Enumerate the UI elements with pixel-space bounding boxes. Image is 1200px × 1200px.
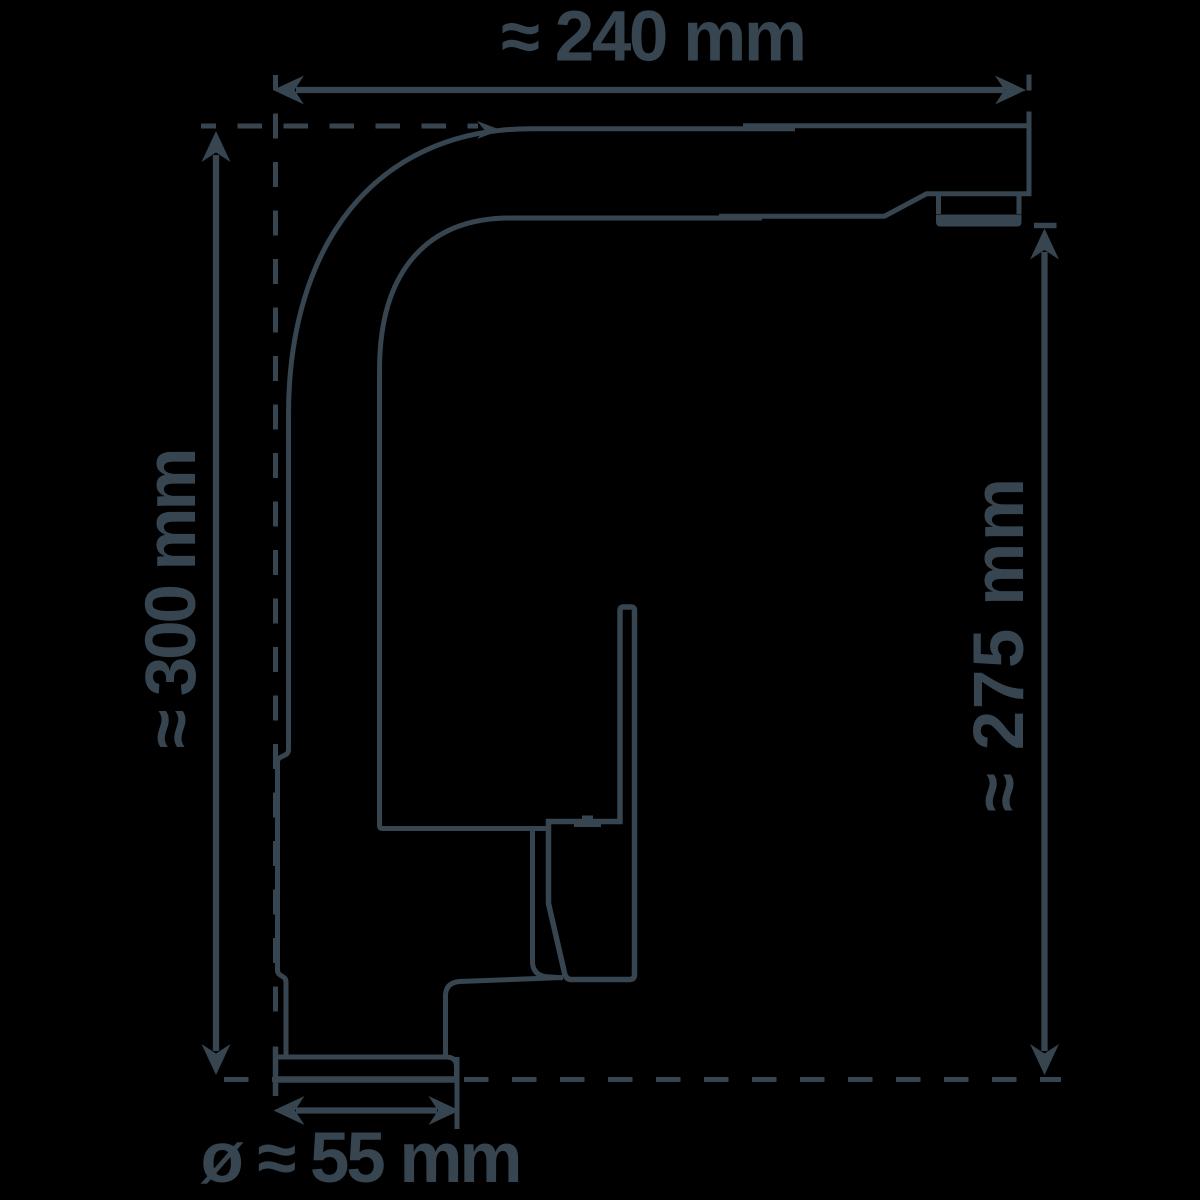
svg-text:ø ≈ 55 mm: ø ≈ 55 mm	[201, 1119, 523, 1198]
svg-text:≈ 240 mm: ≈ 240 mm	[501, 0, 807, 77]
svg-text:≈ 300 mm: ≈ 300 mm	[132, 448, 211, 749]
svg-text:≈ 275 mm: ≈ 275 mm	[960, 478, 1039, 812]
